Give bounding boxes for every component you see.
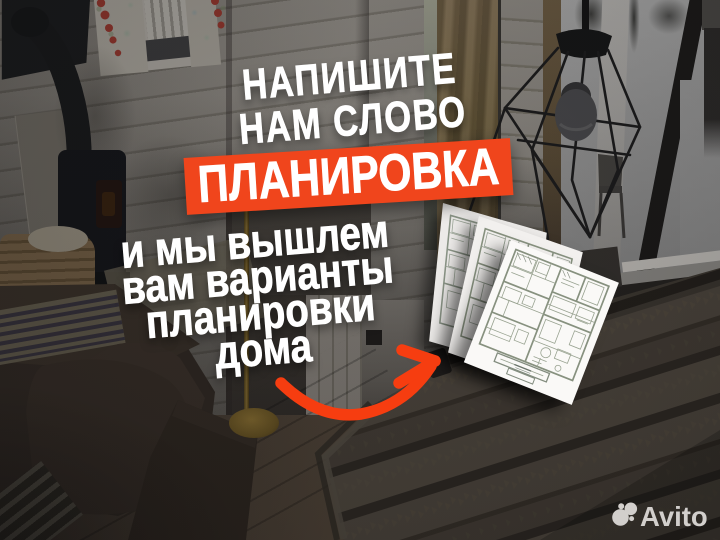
- svg-text:Avito: Avito: [640, 501, 708, 532]
